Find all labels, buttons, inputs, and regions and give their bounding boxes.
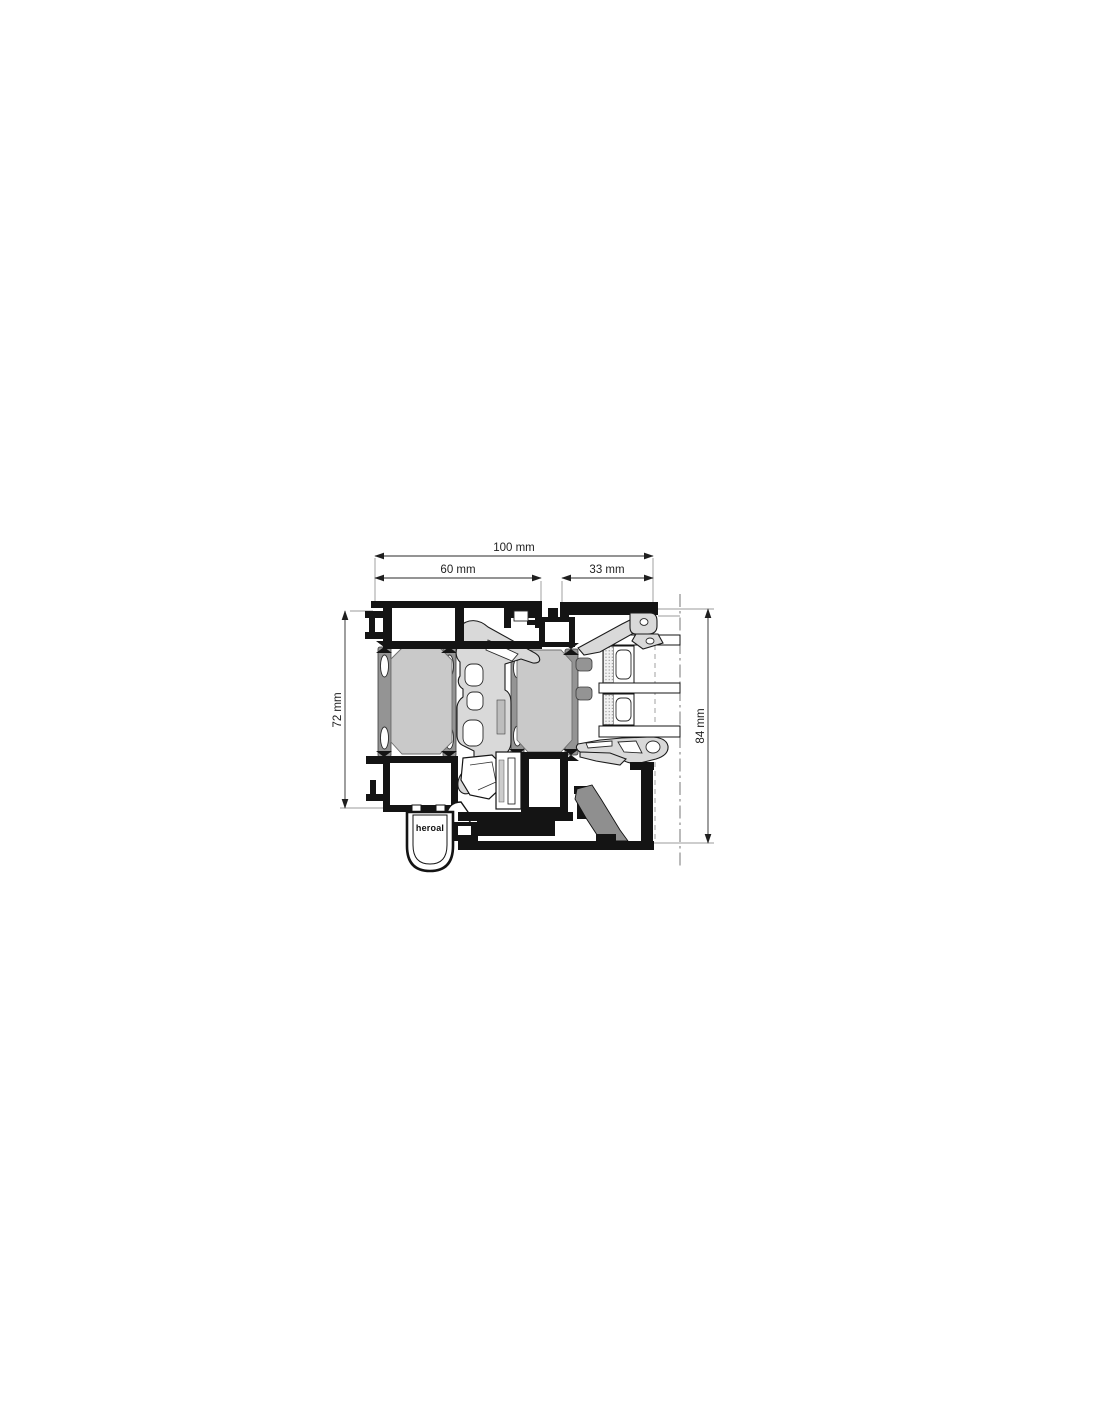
dimension-total-width: 100 mm xyxy=(375,542,653,556)
glazing-spacer xyxy=(603,646,634,683)
dimension-frame-height: 72 mm xyxy=(332,611,345,808)
handle: heroal xyxy=(407,805,453,871)
dimension-label-frame-height: 72 mm xyxy=(332,692,344,727)
dimension-sash-width: 33 mm xyxy=(562,564,653,578)
frame-profile-head xyxy=(365,601,558,649)
glazing-unit xyxy=(599,635,680,737)
dimension-frame-width: 60 mm xyxy=(375,564,541,578)
insulation-frame xyxy=(391,648,452,754)
frame-clip xyxy=(365,611,383,618)
thermal-break-sash xyxy=(511,649,592,755)
glass-pane-middle xyxy=(599,683,680,693)
glazing-spacer xyxy=(603,694,634,725)
profile-cross-section-drawing: heroal 100 mm 60 mm 33 mm 72 mm 84 mm xyxy=(0,0,1100,1422)
glass-pane-inner xyxy=(599,726,680,737)
dimension-system-height: 84 mm xyxy=(695,609,708,843)
brand-label: heroal xyxy=(416,823,444,833)
dimension-label-total-width: 100 mm xyxy=(493,542,535,554)
dimension-label-frame-width: 60 mm xyxy=(440,564,475,576)
glazing-gasket-bottom xyxy=(576,737,668,765)
bottom-frame-gasket xyxy=(575,785,628,841)
insulation-sash xyxy=(517,650,572,752)
dimension-label-sash-width: 33 mm xyxy=(589,564,624,576)
dimension-label-system-height: 84 mm xyxy=(695,708,707,743)
frame-profile-bottom xyxy=(366,756,458,812)
thermal-break-frame xyxy=(378,647,456,757)
page: heroal 100 mm 60 mm 33 mm 72 mm 84 mm xyxy=(0,0,1100,1422)
